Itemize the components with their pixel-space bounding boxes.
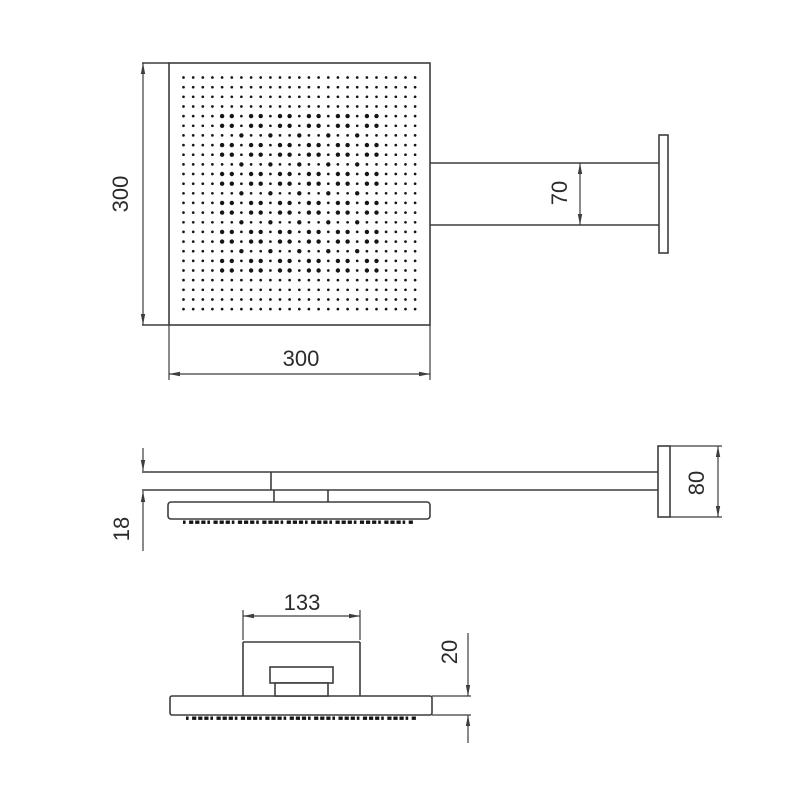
dimension-head-height: 300 <box>108 63 145 325</box>
front-view: 133 20 <box>170 590 471 743</box>
dim-label-wall-plate-height: 80 <box>684 471 709 495</box>
arrowhead-right-icon <box>349 614 360 618</box>
dim-label-profile-thickness: 18 <box>109 517 134 541</box>
dimension-head-width: 300 <box>169 325 430 380</box>
shower-head-front <box>170 696 432 715</box>
dim-label-head-height: 300 <box>108 176 133 213</box>
dimension-wall-plate-height: 80 <box>670 446 722 517</box>
arrowhead-up-icon <box>466 715 470 726</box>
arrowhead-left-icon <box>243 614 254 618</box>
wall-plate-top <box>659 135 668 253</box>
arrowhead-up-icon <box>141 491 145 502</box>
arrowhead-up-icon <box>141 63 145 74</box>
arrowhead-right-icon <box>419 372 430 376</box>
mounting-bracket <box>243 642 360 696</box>
connector-neck <box>275 683 328 696</box>
wall-plate-side <box>658 446 670 517</box>
arrowhead-down-icon <box>141 460 145 471</box>
front-nozzle-row <box>186 717 416 720</box>
connector-block <box>270 667 333 683</box>
dimension-bracket-width: 133 <box>243 590 360 640</box>
shower-head-side <box>168 502 430 519</box>
arrowhead-down-icon <box>141 314 145 325</box>
arrowhead-up-icon <box>716 446 720 457</box>
drawing-canvas: 300 70 <box>0 0 800 787</box>
arrowhead-down-icon <box>578 214 582 225</box>
dimension-profile-thickness: 18 <box>109 448 145 551</box>
arrowhead-down-icon <box>466 685 470 696</box>
top-view: 300 70 <box>108 63 668 380</box>
arrowhead-up-icon <box>578 163 582 174</box>
dimension-arm-width: 70 <box>547 163 582 225</box>
dim-label-edge-thickness: 20 <box>437 640 462 664</box>
dim-label-bracket-width: 133 <box>284 590 321 615</box>
dimension-edge-thickness: 20 <box>432 633 471 743</box>
dim-label-arm-width: 70 <box>547 181 572 205</box>
side-view: 18 80 <box>109 446 722 551</box>
dim-label-head-width: 300 <box>283 346 320 371</box>
side-nozzle-row <box>183 521 413 524</box>
arrowhead-left-icon <box>169 372 180 376</box>
arrowhead-down-icon <box>716 506 720 517</box>
shower-arm-top <box>430 163 659 225</box>
technical-drawing: 300 70 <box>0 0 800 787</box>
